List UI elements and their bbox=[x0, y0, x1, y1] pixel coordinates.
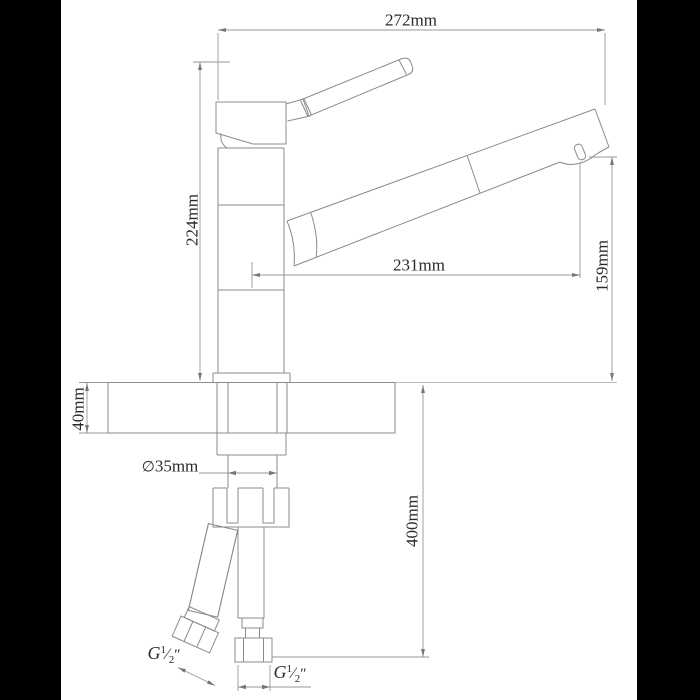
faucet-body bbox=[218, 148, 284, 373]
drawing-linework bbox=[0, 0, 700, 700]
label-spout-reach: 231mm bbox=[393, 257, 445, 274]
spout bbox=[287, 109, 609, 266]
label-outlet-height: 159mm bbox=[594, 240, 611, 292]
label-thread-right: G1⁄2″ bbox=[274, 663, 307, 685]
supply-hose-left bbox=[172, 524, 237, 653]
label-total-height: 224mm bbox=[184, 194, 201, 246]
label-hose-drop: 400mm bbox=[404, 495, 421, 547]
handle-cap bbox=[216, 102, 286, 149]
handle-lever bbox=[286, 58, 413, 121]
label-overall-width: 272mm bbox=[385, 12, 437, 29]
dim-overall-width bbox=[218, 30, 605, 105]
mounting-nut bbox=[213, 488, 289, 527]
dim-thread-left bbox=[178, 668, 215, 686]
dim-hole-diameter bbox=[199, 471, 277, 475]
mounting-shank bbox=[217, 383, 286, 488]
label-thread-left: G1⁄2″ bbox=[148, 644, 181, 666]
countertop-section bbox=[108, 383, 617, 434]
supply-hose-right bbox=[235, 527, 272, 662]
base-flange bbox=[213, 373, 290, 383]
faucet-technical-drawing: 272mm 224mm 231mm 159mm 40mm ∅35mm 400mm… bbox=[0, 0, 700, 700]
hose-nut-right bbox=[235, 638, 272, 662]
diameter-symbol: ∅ bbox=[142, 458, 155, 476]
label-hole-diameter: ∅35mm bbox=[142, 458, 199, 475]
label-counter-thickness: 40mm bbox=[70, 387, 87, 430]
aerator-outlet bbox=[573, 143, 586, 161]
